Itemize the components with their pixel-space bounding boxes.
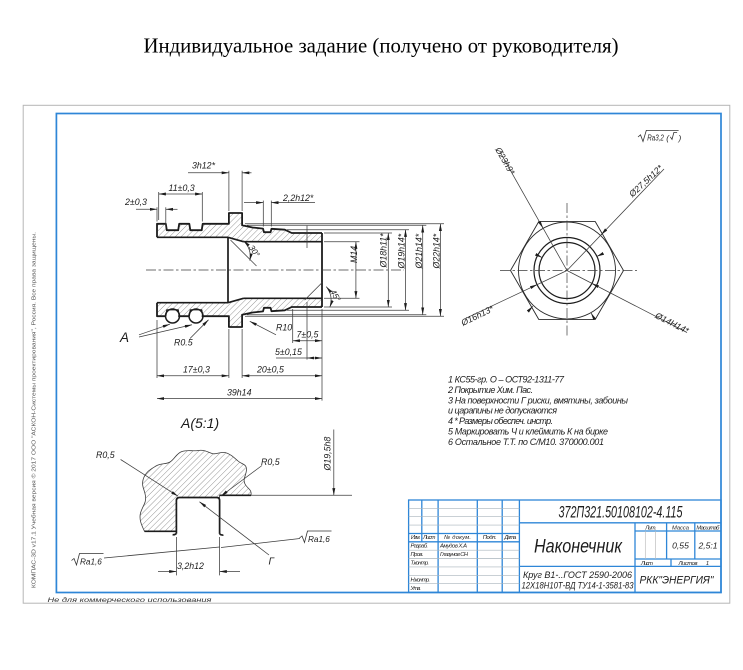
svg-text:Утв.: Утв. bbox=[410, 586, 422, 592]
svg-text:Листов: Листов bbox=[678, 561, 698, 567]
svg-text:М14: М14 bbox=[349, 246, 359, 263]
svg-text:Наконечник: Наконечник bbox=[534, 536, 623, 557]
svg-text:Ø27,5h12*: Ø27,5h12* bbox=[626, 163, 665, 200]
svg-text:2,5:1: 2,5:1 bbox=[697, 540, 717, 550]
svg-text:Ø23h9*: Ø23h9* bbox=[493, 145, 517, 177]
svg-text:Амудов Х.А: Амудов Х.А bbox=[439, 544, 467, 550]
svg-text:Ø19h14*: Ø19h14* bbox=[397, 233, 407, 269]
svg-text:Т.контр.: Т.контр. bbox=[411, 561, 430, 567]
svg-text:Изм.: Изм. bbox=[411, 535, 421, 541]
svg-text:Глазунов СН: Глазунов СН bbox=[440, 552, 469, 558]
svg-text:3,2h12: 3,2h12 bbox=[177, 561, 204, 571]
svg-text:Индивидуальное задание (получе: Индивидуальное задание (получено от руко… bbox=[143, 35, 618, 58]
svg-text:2 Покрытие Хим. Пас.: 2 Покрытие Хим. Пас. bbox=[447, 385, 533, 395]
svg-text:РКК"ЭНЕРГИЯ": РКК"ЭНЕРГИЯ" bbox=[640, 575, 715, 587]
svg-text:КОМПАС-3D v17.1 Учебная версия: КОМПАС-3D v17.1 Учебная версия © 2017 ОО… bbox=[31, 232, 38, 588]
svg-text:5 Маркировать Ч и клеймить К н: 5 Маркировать Ч и клеймить К на бирке bbox=[448, 427, 608, 437]
svg-text:(: ( bbox=[666, 134, 670, 143]
svg-text:2,2h12*: 2,2h12* bbox=[282, 193, 314, 203]
svg-text:Разраб.: Разраб. bbox=[411, 544, 429, 550]
svg-text:30°: 30° bbox=[247, 243, 262, 259]
svg-text:Ø21h14*: Ø21h14* bbox=[414, 233, 424, 269]
svg-text:372П321.50108102-4.115: 372П321.50108102-4.115 bbox=[559, 503, 684, 521]
svg-text:Лит.: Лит. bbox=[644, 525, 656, 531]
svg-text:R10: R10 bbox=[276, 323, 292, 333]
svg-text:Г: Г bbox=[269, 557, 276, 568]
svg-text:А(5:1): А(5:1) bbox=[180, 415, 219, 431]
svg-text:7±0,5: 7±0,5 bbox=[297, 330, 319, 340]
svg-text:Круг В1-..ГОСТ 2590-2006: Круг В1-..ГОСТ 2590-2006 bbox=[523, 570, 632, 580]
svg-text:3 На поверхности Г риски, вмят: 3 На поверхности Г риски, вмятины, забои… bbox=[448, 395, 628, 405]
svg-text:№ докум.: № докум. bbox=[444, 535, 471, 541]
svg-text:Ra3,2: Ra3,2 bbox=[647, 133, 664, 142]
svg-text:12Х18Н10Т-ВД ТУ14-1-3581-83: 12Х18Н10Т-ВД ТУ14-1-3581-83 bbox=[522, 581, 634, 591]
svg-text:Ø16h13*: Ø16h13* bbox=[459, 303, 496, 328]
svg-text:5±0,15: 5±0,15 bbox=[275, 347, 302, 357]
svg-text:6 Остальное Т.Т. по С/М10. 370: 6 Остальное Т.Т. по С/М10. 370000.001 bbox=[448, 437, 604, 447]
svg-text:и царапины не допускаются: и царапины не допускаются bbox=[448, 406, 557, 416]
svg-text:Ra1,6: Ra1,6 bbox=[80, 558, 102, 567]
svg-text:Ø19,5h8: Ø19,5h8 bbox=[323, 437, 333, 472]
svg-text:Ø18h11*: Ø18h11* bbox=[379, 233, 389, 269]
svg-text:0,55: 0,55 bbox=[672, 540, 689, 550]
svg-text:Пров.: Пров. bbox=[411, 552, 424, 558]
svg-text:17±0,3: 17±0,3 bbox=[183, 365, 210, 375]
svg-text:39h14: 39h14 bbox=[227, 388, 252, 398]
svg-text:): ) bbox=[678, 134, 682, 143]
svg-text:1 КС55-гр. О – ОСТ92-1311-77: 1 КС55-гр. О – ОСТ92-1311-77 bbox=[448, 375, 565, 385]
svg-text:Подп.: Подп. bbox=[483, 535, 497, 541]
svg-text:R0,5: R0,5 bbox=[96, 450, 115, 460]
svg-text:Лист: Лист bbox=[640, 561, 653, 567]
svg-text:3h12*: 3h12* bbox=[192, 161, 216, 171]
svg-text:Не для коммерческого использов: Не для коммерческого использования bbox=[48, 596, 213, 604]
svg-text:R0,5: R0,5 bbox=[261, 457, 280, 467]
svg-text:2±0,3: 2±0,3 bbox=[124, 197, 147, 207]
svg-text:Масштаб: Масштаб bbox=[696, 525, 720, 531]
svg-text:20±0,5: 20±0,5 bbox=[256, 365, 284, 375]
svg-text:R0.5: R0.5 bbox=[174, 338, 193, 348]
svg-text:Дата: Дата bbox=[503, 535, 517, 541]
svg-text:Н.контр.: Н.контр. bbox=[411, 577, 431, 583]
svg-text:Лист: Лист bbox=[422, 535, 436, 541]
svg-text:Ra1,6: Ra1,6 bbox=[308, 535, 330, 544]
svg-text:4 * Размеры обеспеч. инстр.: 4 * Размеры обеспеч. инстр. bbox=[448, 416, 553, 426]
svg-text:1: 1 bbox=[706, 561, 709, 567]
svg-text:Ø14H14*: Ø14H14* bbox=[653, 310, 691, 336]
svg-text:45°: 45° bbox=[328, 288, 342, 304]
svg-text:А: А bbox=[119, 330, 129, 345]
svg-text:Масса: Масса bbox=[672, 525, 690, 531]
svg-text:11±0,3: 11±0,3 bbox=[169, 183, 195, 193]
svg-text:Ø22h14*: Ø22h14* bbox=[432, 233, 442, 269]
